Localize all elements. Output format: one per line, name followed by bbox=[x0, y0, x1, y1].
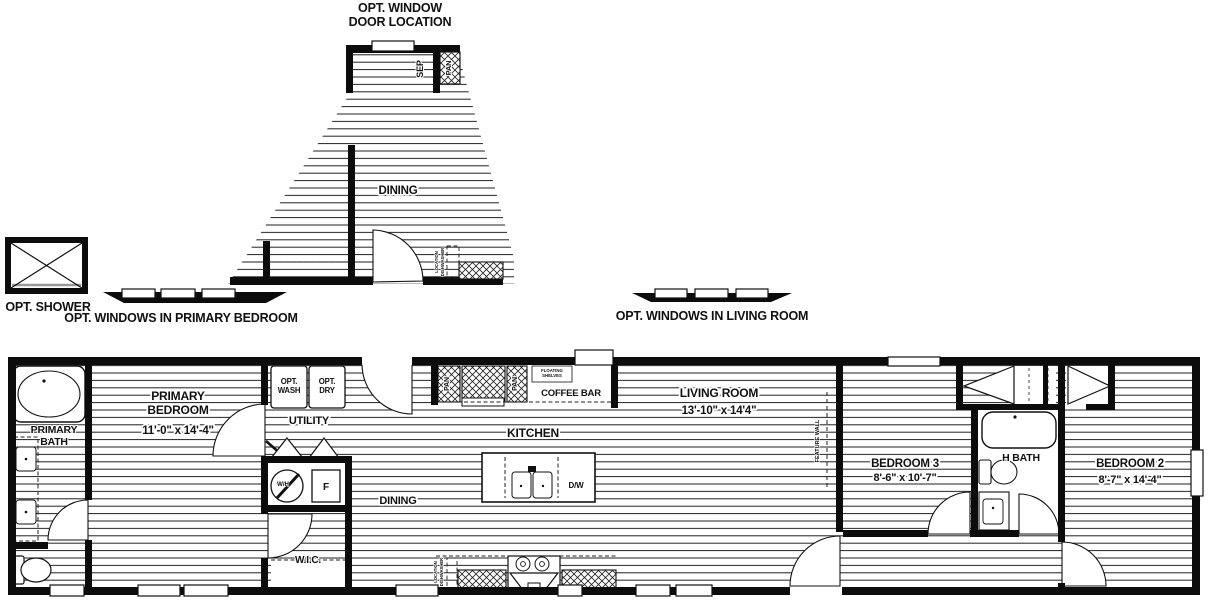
dishwasher-location-label: LOCATION bbox=[434, 251, 439, 273]
window bbox=[138, 585, 180, 596]
closet-floor bbox=[1014, 366, 1056, 404]
wall-segment bbox=[348, 145, 355, 283]
wall-segment bbox=[433, 45, 440, 93]
window bbox=[50, 585, 84, 596]
window bbox=[396, 585, 438, 596]
sink-drain bbox=[542, 485, 544, 487]
toilet-tank bbox=[979, 460, 991, 484]
sink-faucet bbox=[25, 511, 28, 514]
floating-shelves-note: SHELVES bbox=[542, 373, 562, 378]
window bbox=[676, 585, 712, 596]
primary-bath-label: BATH bbox=[40, 436, 68, 448]
window bbox=[736, 289, 768, 298]
wall-segment bbox=[85, 540, 92, 587]
coffee-bar-label: COFFEE BAR bbox=[541, 388, 601, 399]
window bbox=[372, 41, 414, 51]
dishwasher-label: D/W bbox=[569, 481, 585, 490]
window bbox=[655, 289, 687, 298]
pan-label: PAN bbox=[444, 377, 451, 391]
water-heater-label: W/H bbox=[277, 481, 290, 488]
primary-bedroom-label: BEDROOM bbox=[147, 403, 208, 417]
sep-label: SEP bbox=[415, 60, 425, 78]
wall-segment bbox=[1058, 365, 1065, 542]
option-shower: OPT. SHOWER bbox=[5, 240, 90, 314]
opt-windows-primary-label: OPT. WINDOWS IN PRIMARY BEDROOM bbox=[64, 311, 297, 325]
opt-wash-label: OPT. bbox=[281, 377, 298, 386]
pantry-cabinet bbox=[462, 366, 505, 402]
wall-segment bbox=[971, 405, 978, 534]
sink-faucet bbox=[992, 507, 994, 509]
opt-wash-label: WASH bbox=[278, 386, 301, 395]
furnace-label: F bbox=[323, 482, 329, 493]
utility-label: UTILITY bbox=[289, 415, 330, 427]
opt-dry-label: OPT. bbox=[319, 377, 336, 386]
dishwasher-location-label: DISHWASHER bbox=[439, 558, 444, 586]
h-bath-label: H BATH bbox=[1002, 452, 1040, 464]
wic-label: W.I.C. bbox=[295, 555, 321, 566]
wall-segment bbox=[261, 558, 268, 587]
counter-hatched bbox=[459, 262, 503, 279]
wall-segment bbox=[1108, 365, 1115, 407]
kitchen-label: KITCHEN bbox=[507, 426, 559, 440]
toilet-bowl bbox=[21, 558, 51, 582]
tub-faucet bbox=[42, 379, 45, 382]
wall-segment bbox=[611, 362, 618, 408]
wall-segment bbox=[843, 530, 928, 537]
wall-segment bbox=[263, 241, 270, 281]
option-windows-primary-bedroom: OPT. WINDOWS IN PRIMARY BEDROOM bbox=[64, 289, 297, 325]
kitchen-island bbox=[482, 453, 595, 502]
floor-plan-page: LOCATION DISHWASHER SEP PAN DINING OPT. … bbox=[0, 0, 1208, 600]
dining-option-label: DINING bbox=[378, 185, 417, 197]
window bbox=[558, 585, 582, 596]
feature-wall-label: FEATURE WALL bbox=[815, 419, 821, 462]
wall-segment bbox=[8, 357, 16, 595]
main-floor-plan: PRIMARY BATH PRIMARY BEDROOM 11'-0" x 14… bbox=[8, 350, 1203, 596]
primary-bedroom-dims: 11'-0" x 14'-4" bbox=[142, 425, 214, 437]
island-faucet bbox=[528, 466, 536, 472]
dishwasher-location-label: LOCATION bbox=[433, 561, 438, 583]
tub-basin bbox=[18, 371, 80, 417]
wall-segment bbox=[970, 530, 1019, 537]
living-room-dims: 13'-10" x 14'4" bbox=[682, 405, 757, 417]
pan-label: PAN bbox=[512, 377, 519, 391]
living-room-label: LIVING ROOM bbox=[680, 386, 759, 400]
wall-segment bbox=[345, 456, 352, 587]
sink-drain bbox=[520, 485, 522, 487]
bedroom-3-dims: 8'-6" x 10'-7" bbox=[873, 472, 936, 484]
primary-bath-label: PRIMARY bbox=[31, 424, 78, 436]
opt-windows-living-label: OPT. WINDOWS IN LIVING ROOM bbox=[616, 309, 809, 323]
wall-segment bbox=[956, 365, 963, 407]
bedroom-2-dims: 8'-7" x 14'-4" bbox=[1098, 474, 1161, 486]
option-windows-living-room: OPT. WINDOWS IN LIVING ROOM bbox=[616, 289, 809, 323]
wall-segment bbox=[261, 365, 268, 405]
wall-segment bbox=[346, 45, 353, 93]
option-title: OPT. WINDOW bbox=[358, 1, 442, 15]
wall-segment bbox=[956, 404, 1065, 410]
primary-bedroom-label: PRIMARY bbox=[151, 389, 205, 403]
pan-label: PAN bbox=[444, 61, 453, 76]
dishwasher-location-label: DISHWASHER bbox=[440, 248, 445, 276]
entry-door-threshold bbox=[790, 587, 842, 595]
window bbox=[888, 357, 940, 366]
burner bbox=[535, 557, 549, 571]
utility-door-threshold bbox=[362, 357, 412, 365]
window bbox=[636, 585, 670, 596]
bedroom-3-label: BEDROOM 3 bbox=[871, 458, 939, 470]
wall-segment bbox=[261, 505, 352, 512]
wall-segment bbox=[85, 365, 92, 500]
option-title: DOOR LOCATION bbox=[349, 15, 452, 29]
wall-segment bbox=[431, 362, 438, 405]
wall-segment bbox=[230, 277, 373, 285]
wall-segment bbox=[1043, 365, 1048, 405]
floor-plan-svg: LOCATION DISHWASHER SEP PAN DINING OPT. … bbox=[0, 0, 1208, 600]
sink-faucet bbox=[25, 458, 28, 461]
sink bbox=[983, 499, 1003, 524]
window bbox=[122, 289, 155, 298]
wall-segment bbox=[836, 365, 843, 532]
window bbox=[184, 585, 228, 596]
rear-door bbox=[575, 350, 613, 365]
window bbox=[202, 289, 235, 298]
bedroom-2-label: BEDROOM 2 bbox=[1096, 458, 1164, 470]
option-window-door-diagram: LOCATION DISHWASHER SEP PAN DINING OPT. … bbox=[228, 1, 514, 285]
window bbox=[161, 289, 195, 298]
opt-dry-label: DRY bbox=[319, 386, 336, 395]
burner bbox=[516, 557, 530, 571]
tub-faucet bbox=[1013, 415, 1016, 418]
window bbox=[1191, 450, 1203, 496]
option-fan-hatch bbox=[228, 45, 514, 284]
wall-segment bbox=[1086, 404, 1115, 410]
wall-segment bbox=[261, 456, 352, 463]
hbath-tub bbox=[982, 412, 1056, 448]
dining-label: DINING bbox=[379, 495, 416, 507]
window bbox=[695, 289, 728, 298]
